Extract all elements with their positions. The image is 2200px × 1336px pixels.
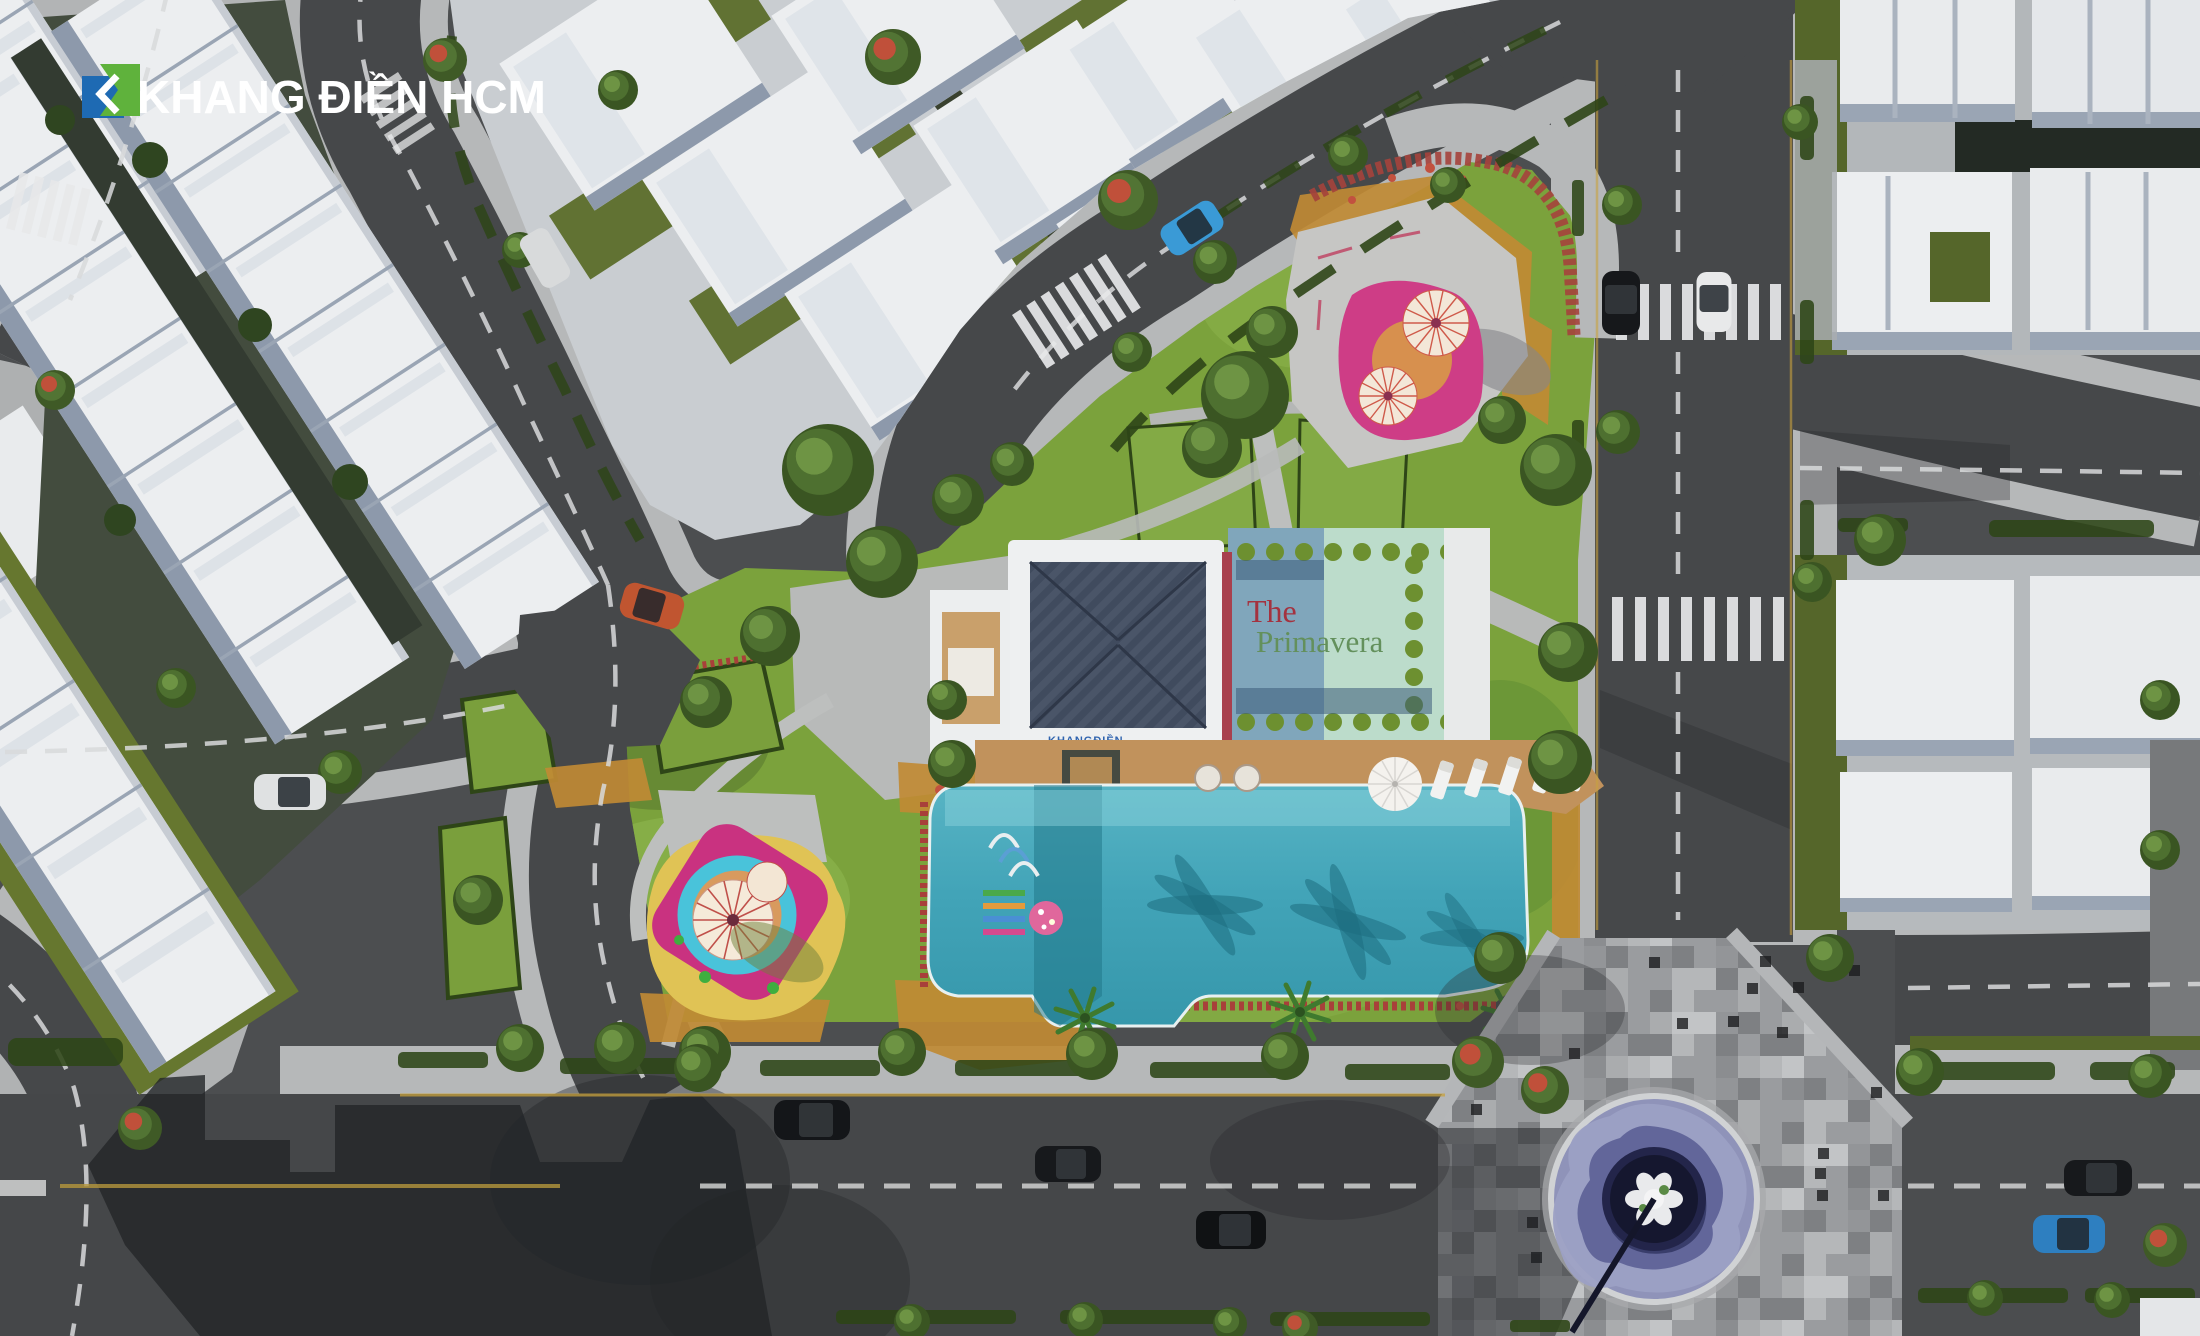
svg-text:Primavera: Primavera bbox=[1256, 624, 1384, 659]
svg-text:KHANG ĐIỀN HCM: KHANG ĐIỀN HCM bbox=[137, 71, 546, 123]
